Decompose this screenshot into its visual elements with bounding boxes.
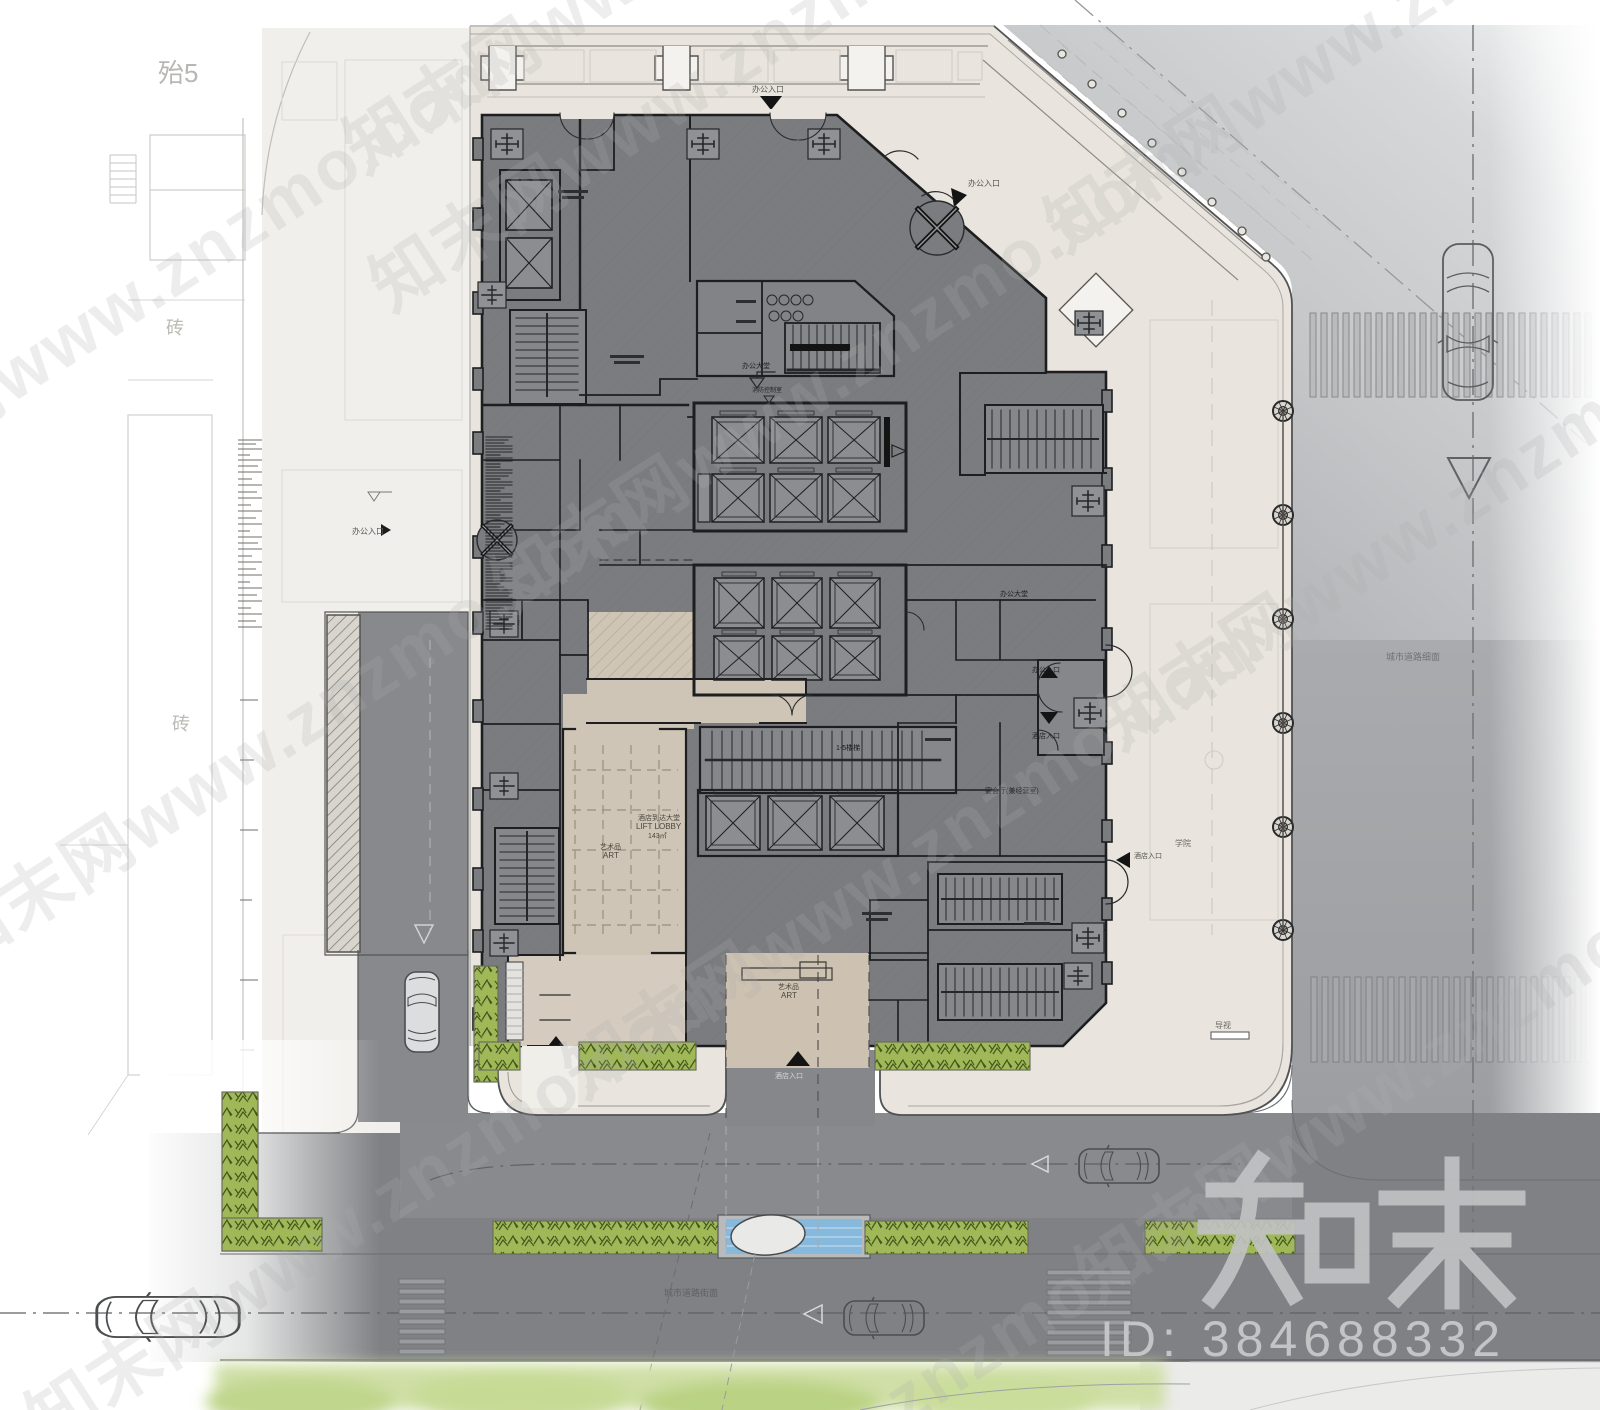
svg-text:城市道路细面: 城市道路细面 [1386, 651, 1440, 662]
svg-text:办公入口: 办公入口 [352, 526, 384, 536]
svg-text:酒店入口: 酒店入口 [775, 1071, 803, 1080]
svg-text:学院: 学院 [1175, 838, 1191, 848]
svg-text:ART: ART [781, 991, 797, 1000]
svg-text:办公大堂: 办公大堂 [742, 361, 770, 370]
svg-text:酒店到达大堂: 酒店到达大堂 [638, 813, 680, 822]
svg-text:1-5楼梯: 1-5楼梯 [836, 743, 860, 752]
svg-text:砖: 砖 [166, 318, 184, 338]
svg-text:酒店入口: 酒店入口 [1134, 851, 1162, 860]
svg-text:砖: 砖 [172, 714, 190, 734]
svg-text:ART: ART [603, 851, 619, 860]
svg-text:ID: 384688332: ID: 384688332 [1100, 1311, 1506, 1367]
svg-text:办公入口: 办公入口 [1032, 665, 1060, 674]
svg-text:办公大堂: 办公大堂 [1000, 589, 1028, 598]
svg-text:LIFT LOBBY: LIFT LOBBY [636, 822, 682, 831]
svg-text:导视: 导视 [1215, 1020, 1231, 1030]
svg-text:城市道路街面: 城市道路街面 [664, 1287, 718, 1298]
svg-text:艺术品: 艺术品 [600, 842, 621, 851]
svg-text:殆5: 殆5 [158, 58, 198, 88]
svg-text:143㎡: 143㎡ [648, 832, 667, 840]
svg-text:办公入口: 办公入口 [968, 178, 1000, 188]
